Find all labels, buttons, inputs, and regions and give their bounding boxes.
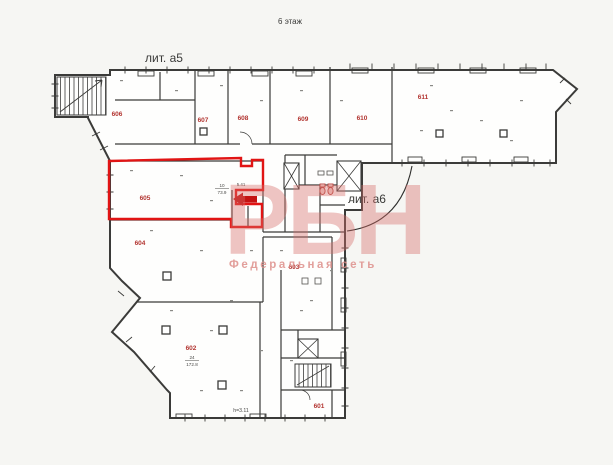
room-label-602: 602 [186, 345, 197, 352]
room-label-609: 609 [298, 116, 309, 123]
room-label-607: 607 [198, 117, 209, 124]
floor-title: 6 этаж [278, 17, 303, 26]
wing-a5-label: лит. а5 [145, 51, 183, 65]
floor-plan-drawing: 6 этаж лит. а5 лит. а6 606 607 608 609 6… [0, 0, 613, 465]
room-label-603: 603 [289, 264, 300, 271]
room-label-604: 604 [135, 240, 146, 247]
staircase-top-left [57, 77, 106, 115]
wing-a6-label: лит. а6 [348, 192, 386, 206]
staircase-bottom-core [295, 364, 331, 387]
room-label-608: 608 [238, 115, 249, 122]
lobby-dimension: 5.41 [237, 182, 246, 187]
room-label-601: 601 [314, 403, 325, 410]
room-label-610: 610 [357, 115, 368, 122]
room602-plan-number: 24 [189, 355, 195, 360]
room-label-611: 611 [418, 94, 429, 101]
room605-plan-number: 10 [219, 183, 225, 188]
ceiling-height-note: h=3.11 [233, 408, 249, 414]
floor-plan-page: 6 этаж лит. а5 лит. а6 606 607 608 609 6… [0, 0, 613, 465]
room602-area: 172.8 [186, 362, 198, 367]
room-label-605: 605 [140, 195, 151, 202]
room605-area: 73.9 [218, 190, 227, 195]
room-label-606: 606 [112, 111, 123, 118]
